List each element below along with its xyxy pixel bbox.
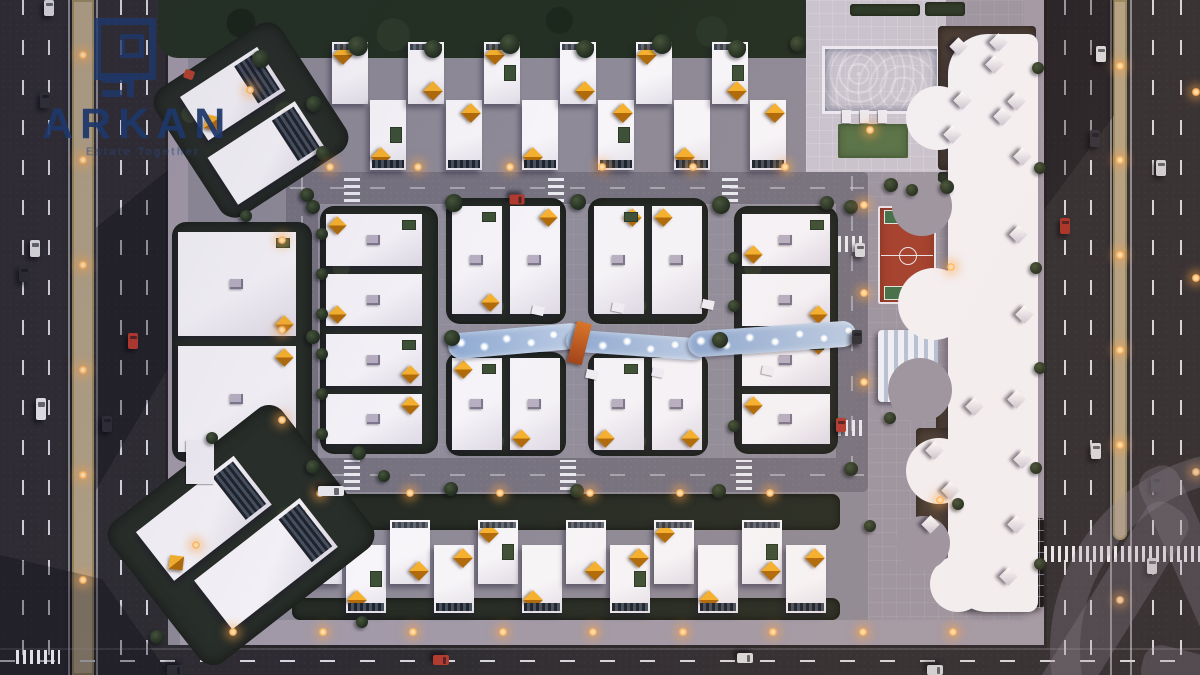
car (1156, 160, 1166, 176)
roof-solar-slats (788, 603, 824, 611)
fountain-jet (745, 332, 756, 343)
street-light-glow (498, 627, 508, 637)
roof-solar-slats (480, 522, 516, 528)
orange-skylight-pyramid (654, 208, 672, 226)
tree-canopy (348, 36, 368, 56)
townhouse (446, 100, 482, 170)
roof-solar-slats (448, 160, 480, 168)
fountain-jet (598, 340, 609, 351)
street-light-glow (277, 415, 287, 425)
townhouse (478, 520, 518, 584)
apartment-building (510, 358, 560, 450)
roof-bulkhead (779, 235, 792, 245)
tree-canopy (952, 498, 964, 510)
orange-skylight-pyramid (681, 429, 699, 447)
tree-canopy (906, 184, 918, 196)
street-light-glow (413, 162, 423, 172)
roof-garden (482, 212, 496, 222)
arkan-logo-icon (94, 18, 144, 104)
car (318, 486, 344, 496)
roof-garden (402, 220, 416, 230)
tree-canopy (316, 348, 328, 360)
orange-skylight-pyramid (613, 103, 633, 123)
landscaped-block (446, 352, 566, 456)
apartment-building (326, 214, 422, 266)
townhouse (698, 545, 738, 613)
roof-solar-slats (392, 522, 428, 528)
roof-bulkhead (367, 235, 380, 245)
promenade-curve (898, 268, 970, 340)
street-light-glow (325, 162, 335, 172)
orange-skylight-pyramid (744, 245, 762, 263)
fountain-jet (622, 336, 633, 347)
street-light-glow (1115, 155, 1125, 165)
fountain-jet (696, 336, 707, 347)
tree-canopy (570, 484, 584, 498)
tree-canopy (150, 630, 164, 644)
street-light-glow (408, 627, 418, 637)
car (927, 665, 943, 675)
apartment-building (326, 394, 422, 444)
tree-canopy (352, 446, 366, 460)
orange-skylight-pyramid (461, 103, 481, 123)
car (852, 330, 862, 344)
roof-bulkhead (670, 399, 683, 409)
tree-canopy (728, 420, 740, 432)
fountain-jet (548, 329, 559, 340)
tree-canopy (1030, 262, 1042, 274)
tree-canopy (1034, 362, 1046, 374)
roof-garden (618, 127, 630, 143)
tree-canopy (444, 330, 460, 346)
apartment-building (742, 274, 830, 326)
tree-canopy (306, 460, 320, 474)
street-light-glow (78, 365, 88, 375)
orange-skylight-pyramid (761, 561, 781, 581)
apartment-building (742, 394, 830, 444)
street-light-glow (865, 125, 875, 135)
fountain-jet (525, 337, 536, 348)
tree-canopy (728, 252, 740, 264)
roof-solar-slats (700, 603, 736, 611)
townhouse (434, 545, 474, 613)
brand-tagline: Estate Together (86, 146, 200, 158)
tree-canopy (206, 432, 218, 444)
roof-garden (390, 127, 402, 143)
street-light-glow (780, 162, 790, 172)
street-light-glow (675, 488, 685, 498)
roof-bulkhead (470, 255, 483, 265)
townhouse (566, 520, 606, 584)
fountain-jet (645, 344, 656, 355)
street-light-glow (948, 627, 958, 637)
townhouse (522, 545, 562, 613)
tree-canopy (820, 196, 834, 210)
orange-skylight-pyramid (809, 305, 827, 323)
roof-garden (370, 571, 382, 587)
street-light-glow (688, 162, 698, 172)
orange-skylight-pyramid (409, 561, 429, 581)
tree-canopy (445, 194, 463, 212)
planter-box (850, 4, 920, 16)
apartment-building (594, 206, 644, 314)
sun-lounger (878, 110, 887, 123)
orange-skylight-pyramid (328, 216, 346, 234)
street-light-glow (585, 488, 595, 498)
townhouse (610, 545, 650, 613)
orange-skylight-pyramid (453, 548, 473, 568)
street-light-glow (935, 495, 945, 505)
street-light-glow (505, 162, 515, 172)
roof-bulkhead (367, 355, 380, 365)
tree-canopy (316, 268, 328, 280)
car (737, 653, 753, 663)
fountain-jet (479, 341, 490, 352)
tree-canopy (652, 34, 672, 54)
roof-bulkhead (230, 279, 243, 289)
planter-box (925, 2, 965, 16)
roof-bulkhead (779, 355, 792, 365)
tree-canopy (940, 180, 954, 194)
car (510, 195, 525, 205)
street-light-glow (191, 540, 201, 550)
car (1090, 130, 1100, 147)
tree-canopy (728, 40, 746, 58)
entrance-canopy (186, 440, 214, 484)
sun-lounger (860, 110, 869, 123)
roof-garden (732, 65, 744, 81)
tree-canopy (864, 520, 876, 532)
street-light-glow (78, 575, 88, 585)
tree-canopy (316, 308, 328, 320)
street-light-glow (859, 288, 869, 298)
townhouse (522, 100, 558, 170)
roof-bulkhead (470, 399, 483, 409)
masterplan-aerial-render: ARKAN Estate Together (0, 0, 1200, 675)
street-light-glow (1115, 250, 1125, 260)
car (30, 240, 40, 257)
roof-garden (810, 220, 824, 230)
roof-bulkhead (612, 255, 625, 265)
car (102, 416, 112, 432)
crosswalk (344, 174, 360, 202)
roof-solar-slats (524, 160, 556, 168)
street-light-glow (597, 162, 607, 172)
orange-skylight-pyramid (423, 81, 443, 101)
roof-bulkhead (528, 399, 541, 409)
sun-lounger (842, 110, 851, 123)
orange-skylight-pyramid (575, 81, 595, 101)
emblem-watermark (1020, 420, 1200, 675)
tree-canopy (576, 40, 594, 58)
apartment-building (594, 358, 644, 450)
brand-name: ARKAN (42, 100, 232, 149)
car (836, 418, 846, 432)
tree-canopy (378, 470, 390, 482)
street-light-glow (678, 627, 688, 637)
orange-skylight-pyramid (727, 81, 747, 101)
arkan-watermark: ARKAN Estate Together (40, 14, 320, 174)
street-light-glow (765, 488, 775, 498)
tree-canopy (356, 616, 368, 628)
building-shadow (96, 170, 168, 490)
landscaped-block (588, 352, 708, 456)
tree-canopy (316, 228, 328, 240)
tree-canopy (712, 484, 726, 498)
tree-canopy (728, 300, 740, 312)
tree-canopy (240, 210, 252, 222)
apartment-building (510, 206, 560, 314)
street-light-glow (228, 627, 238, 637)
tree-canopy (306, 200, 320, 214)
roof-solar-slats (612, 603, 648, 611)
tree-canopy (500, 34, 520, 54)
tree-canopy (424, 40, 442, 58)
street-light-glow (859, 377, 869, 387)
car (167, 665, 183, 675)
apartment-building (742, 214, 830, 266)
roof-bulkhead (612, 399, 625, 409)
apartment-building (326, 334, 422, 386)
fountain-jet (670, 339, 681, 350)
building-shadow (1044, 0, 1114, 210)
roof-solar-slats (212, 461, 266, 520)
car (36, 398, 46, 420)
street-light-glow (1115, 61, 1125, 71)
promenade-curve-notch (888, 358, 952, 422)
street-light-glow (405, 488, 415, 498)
roof-solar-slats (372, 160, 404, 168)
roof-solar-slats (348, 603, 384, 611)
tree-canopy (712, 332, 728, 348)
roof-garden (502, 544, 514, 560)
roof-solar-slats (524, 603, 560, 611)
orange-skylight-pyramid (596, 429, 614, 447)
apartment-building (652, 206, 702, 314)
orange-skylight-pyramid (275, 348, 293, 366)
lane-dash (290, 474, 864, 476)
townhouse (742, 520, 782, 584)
townhouse (598, 100, 634, 170)
landscaped-block (320, 206, 438, 454)
roof-bulkhead (367, 295, 380, 305)
tree-canopy (712, 196, 730, 214)
apartment-building (452, 358, 502, 450)
car (128, 333, 138, 349)
roof-bulkhead (670, 255, 683, 265)
orange-skylight-pyramid (401, 365, 419, 383)
car (855, 243, 865, 257)
fountain-jet (794, 329, 805, 340)
orange-skylight-pyramid (629, 548, 649, 568)
fountain-jet (819, 333, 830, 344)
roof-bulkhead (779, 295, 792, 305)
orange-skylight-pyramid (765, 103, 785, 123)
street-light-glow (859, 200, 869, 210)
roof-garden (766, 544, 778, 560)
fountain-jet (502, 333, 513, 344)
tree-canopy (844, 200, 858, 214)
roof-solar-slats (744, 522, 780, 528)
roof-solar-slats (656, 522, 692, 528)
orange-skylight-pyramid (512, 429, 530, 447)
center-circle (899, 247, 917, 265)
roof-bulkhead (528, 255, 541, 265)
orange-skylight-pyramid (328, 305, 346, 323)
roof-garden (402, 340, 416, 350)
townhouse (654, 520, 694, 584)
street-light-glow (858, 627, 868, 637)
street-light-glow (277, 325, 287, 335)
townhouse (674, 100, 710, 170)
street-light-glow (1115, 345, 1125, 355)
roof-solar-slats (568, 522, 604, 528)
street-light-glow (588, 627, 598, 637)
tree-canopy (1034, 162, 1046, 174)
tree-canopy (884, 412, 896, 424)
roof-garden (624, 364, 638, 374)
tree-canopy (444, 482, 458, 496)
street-light-glow (78, 260, 88, 270)
orange-skylight-pyramid (539, 208, 557, 226)
orange-skylight-pyramid (585, 561, 605, 581)
tree-canopy (300, 188, 314, 202)
car (433, 655, 449, 665)
lane-dash (290, 187, 864, 189)
car (1096, 46, 1106, 62)
orange-skylight-pyramid (454, 360, 472, 378)
orange-skylight-pyramid (805, 548, 825, 568)
tree-canopy (790, 36, 806, 52)
tree-canopy (570, 194, 586, 210)
street-light-glow (318, 627, 328, 637)
roof-bulkhead (779, 414, 792, 424)
roof-solar-slats (279, 504, 333, 563)
roof-solar-slats (436, 603, 472, 611)
crosswalk (736, 460, 752, 490)
townhouse (370, 100, 406, 170)
townhouse (390, 520, 430, 584)
landscaped-block (588, 198, 708, 324)
roof-garden (634, 571, 646, 587)
tree-canopy (884, 178, 898, 192)
street-light-glow (495, 488, 505, 498)
orange-skylight-pyramid (481, 293, 499, 311)
apartment-building (452, 206, 502, 314)
tree-canopy (844, 462, 858, 476)
orange-skylight-pyramid (401, 396, 419, 414)
street-light-glow (1191, 273, 1200, 283)
car (19, 266, 29, 282)
street-light-glow (78, 470, 88, 480)
tree-canopy (1032, 62, 1044, 74)
car (1060, 218, 1070, 234)
orange-skylight-pyramid (744, 396, 762, 414)
roof-bulkhead (230, 394, 243, 404)
roof-garden (482, 364, 496, 374)
tree-canopy (316, 388, 328, 400)
street-light-glow (277, 235, 287, 245)
apartment-building (326, 274, 422, 326)
crosswalk (16, 650, 60, 664)
roof-bulkhead (367, 414, 380, 424)
apartment-building (178, 232, 296, 336)
tree-canopy (306, 330, 320, 344)
orange-skylight-pyramid (169, 555, 185, 571)
fountain-jet (770, 336, 781, 347)
roof-garden (504, 65, 516, 81)
street-light-glow (1191, 87, 1200, 97)
landscaped-block (446, 198, 566, 324)
street-light-glow (946, 262, 956, 272)
roof-garden (624, 212, 638, 222)
crosswalk (344, 460, 360, 490)
street-light-glow (768, 627, 778, 637)
townhouse (750, 100, 786, 170)
townhouse (786, 545, 826, 613)
tree-canopy (316, 428, 328, 440)
